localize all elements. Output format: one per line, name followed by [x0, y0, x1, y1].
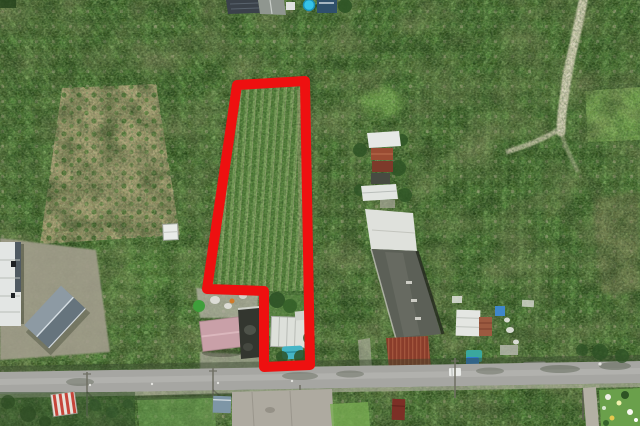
pallet-stack: [479, 317, 492, 336]
white-roof: [367, 131, 401, 148]
notch-farmyard: [193, 288, 262, 374]
blue-gray-shed: [213, 396, 232, 414]
green-field: [137, 396, 216, 426]
rust-roof-b: [372, 161, 393, 172]
small-white-roof: [286, 2, 295, 10]
cyan-water-tank: [304, 0, 315, 11]
aerial-photo-stage: [0, 0, 640, 426]
dark-red-shed: [392, 399, 406, 420]
dark-roof-section: [371, 173, 390, 184]
white-shed-roof: [456, 310, 481, 337]
dark-concrete-house: [238, 307, 262, 359]
small-white-shed: [163, 224, 179, 241]
white-industrial-building: [0, 242, 24, 326]
bright-tree: [193, 300, 205, 312]
blue-tarp: [495, 306, 505, 316]
solar-roof-shed: [226, 0, 260, 14]
orange-debris: [230, 299, 235, 304]
pink-roof-house: [199, 317, 244, 352]
top-left-trees: [0, 0, 16, 8]
red-white-canopy: [51, 391, 78, 416]
concrete-pad: [232, 389, 334, 426]
flower-garden: [599, 388, 640, 426]
grass-strip: [330, 402, 370, 426]
white-canopy: [270, 316, 305, 347]
dark-blue-shed: [317, 0, 337, 13]
aerial-photo: [0, 0, 640, 426]
roof-vent: [11, 293, 15, 298]
roof-vent: [11, 261, 16, 267]
